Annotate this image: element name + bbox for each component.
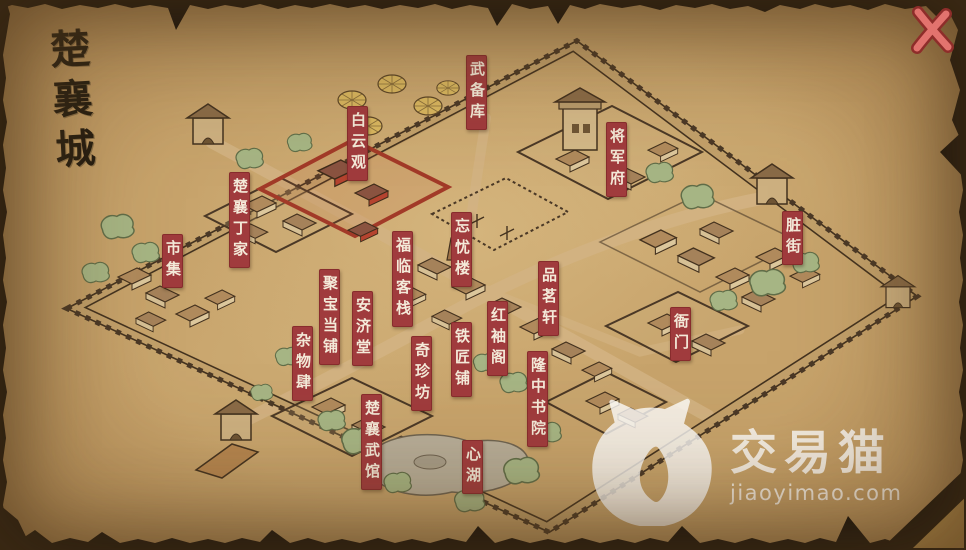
poi-xinhu[interactable]: 心湖 bbox=[462, 440, 483, 494]
poi-pinmingxuan[interactable]: 品茗轩 bbox=[538, 261, 559, 336]
watchtower bbox=[555, 88, 605, 150]
poi-jubao-dangpu[interactable]: 聚宝当铺 bbox=[319, 269, 340, 365]
poi-qizhenfang[interactable]: 奇珍坊 bbox=[411, 336, 432, 411]
poi-fulin-kezhan[interactable]: 福临客栈 bbox=[392, 231, 413, 327]
game-map-window: 楚襄城 武备库 白云观 将军府 楚襄丁家 市集 脏街 忘忧楼 福临客栈 品茗轩 … bbox=[0, 0, 966, 550]
close-x-icon bbox=[906, 4, 958, 56]
poi-tiejiangpu[interactable]: 铁匠铺 bbox=[451, 322, 472, 397]
poi-shiji[interactable]: 市集 bbox=[162, 234, 183, 288]
poi-zangjie[interactable]: 脏街 bbox=[782, 211, 803, 265]
map-title: 楚襄城 bbox=[36, 27, 102, 180]
gate-ramp bbox=[196, 444, 258, 478]
poi-yamen[interactable]: 衙门 bbox=[670, 307, 691, 361]
poi-zawusi[interactable]: 杂物肆 bbox=[292, 326, 313, 401]
poi-anjitang[interactable]: 安济堂 bbox=[352, 291, 373, 366]
poi-wubeiku[interactable]: 武备库 bbox=[466, 55, 487, 130]
poi-baiyunguan[interactable]: 白云观 bbox=[347, 106, 368, 181]
poi-chuxiang-wuguan[interactable]: 楚襄武馆 bbox=[361, 394, 382, 490]
poi-wangyoulou[interactable]: 忘忧楼 bbox=[451, 212, 472, 287]
northeast-gate bbox=[751, 164, 793, 204]
weapon-racks bbox=[470, 214, 514, 240]
northwest-gate bbox=[187, 104, 229, 144]
poi-hongxiuge[interactable]: 红袖阁 bbox=[487, 301, 508, 376]
close-button[interactable] bbox=[906, 4, 958, 56]
poi-jiangjunfu[interactable]: 将军府 bbox=[606, 122, 627, 197]
poi-longzhong-shuyuan[interactable]: 隆中书院 bbox=[527, 351, 548, 447]
poi-chuxiang-dingjia[interactable]: 楚襄丁家 bbox=[229, 172, 250, 268]
southwest-gate bbox=[215, 400, 257, 440]
